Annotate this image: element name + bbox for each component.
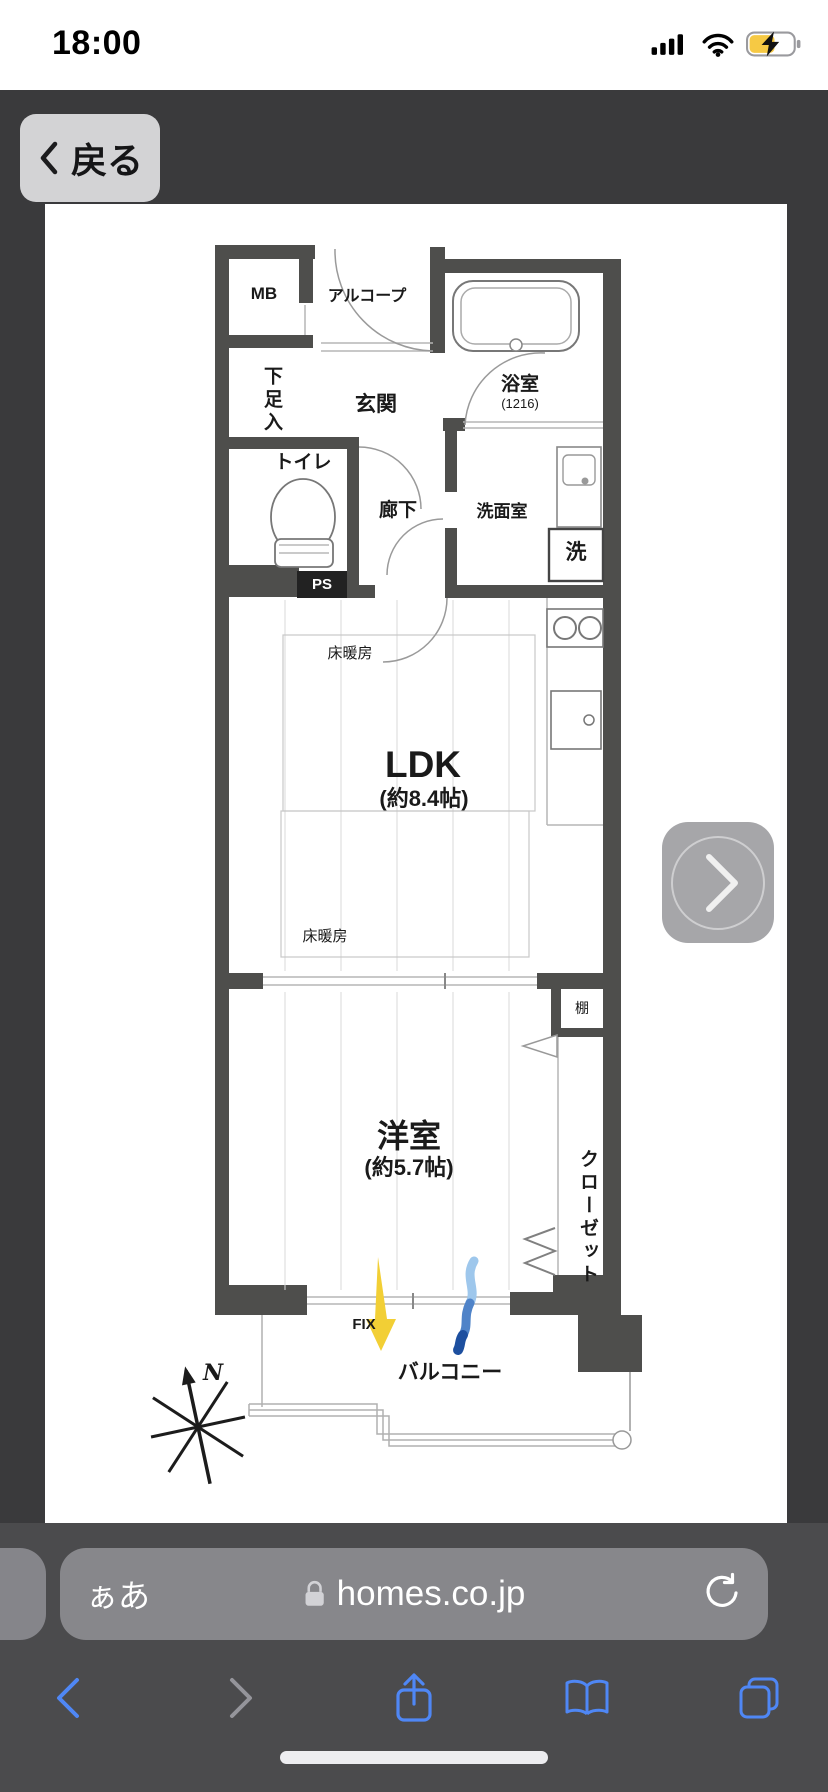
adjacent-tab-fragment[interactable]	[0, 1548, 46, 1640]
status-time: 18:00	[52, 24, 141, 63]
label-entrance: 玄関	[340, 393, 412, 416]
label-closet: クローゼット	[569, 1093, 597, 1343]
label-pipe-space: PS	[297, 571, 347, 598]
label-western-room: 洋室	[370, 1119, 448, 1154]
balcony-drain	[613, 1431, 631, 1449]
label-hallway: 廊下	[363, 501, 433, 522]
url-text: homes.co.jp	[337, 1574, 526, 1614]
back-button-label: 戻る	[71, 132, 143, 184]
cellular-signal-icon	[650, 31, 690, 57]
iphone-screen: 18:00	[0, 0, 828, 1792]
label-washroom: 洗面室	[463, 503, 541, 522]
label-shoe-cabinet: 下足入	[245, 355, 281, 445]
bathtub	[453, 281, 579, 351]
label-floor-heating-upper: 床暖房	[317, 646, 383, 663]
toilet-bowl	[271, 479, 335, 567]
label-toilet: トイレ	[267, 453, 339, 474]
book-open-icon	[561, 1676, 613, 1720]
washbasin	[557, 447, 601, 527]
label-fix-window: FIX	[343, 1317, 385, 1334]
door-swing-marker	[523, 1035, 557, 1057]
browser-forward-button[interactable]	[215, 1670, 267, 1726]
status-icons	[650, 30, 802, 58]
label-shelf: 棚	[567, 1001, 597, 1016]
browser-back-button[interactable]	[42, 1670, 94, 1726]
url-display[interactable]: homes.co.jp	[303, 1574, 526, 1614]
label-ldk: LDK	[375, 745, 471, 786]
reload-button[interactable]	[698, 1571, 742, 1618]
chevron-right-icon	[226, 1675, 256, 1721]
chevron-left-icon	[53, 1675, 83, 1721]
safari-toolbar	[0, 1663, 828, 1733]
label-bathroom-size: (1216)	[487, 397, 553, 411]
kitchen-stove	[547, 609, 603, 647]
battery-charging-icon	[746, 30, 802, 58]
chevron-right-icon	[668, 833, 768, 933]
label-washer: 洗	[549, 541, 603, 564]
label-alcove: アルコープ	[315, 288, 419, 306]
status-bar: 18:00	[0, 0, 828, 90]
reader-mode-button[interactable]: ぁあ	[86, 1571, 150, 1617]
tabs-button[interactable]	[734, 1670, 786, 1726]
chevron-left-icon	[37, 136, 61, 180]
next-image-button[interactable]	[662, 822, 774, 943]
closet-folding-door	[525, 1228, 555, 1275]
label-western-room-size: (約5.7帖)	[355, 1156, 463, 1180]
safari-bottom-bar: ぁあ homes.co.jp	[0, 1523, 828, 1792]
label-ldk-size: (約8.4帖)	[360, 787, 488, 811]
bookmarks-button[interactable]	[561, 1670, 613, 1726]
kitchen-sink	[551, 691, 601, 749]
reload-icon	[698, 1571, 742, 1615]
label-balcony: バルコニー	[383, 1361, 517, 1384]
stacked-squares-icon	[736, 1674, 784, 1722]
share-icon	[391, 1670, 437, 1726]
back-button[interactable]: 戻る	[20, 114, 160, 202]
airflow-arrow	[458, 1261, 474, 1350]
label-floor-heating-lower: 床暖房	[292, 929, 358, 946]
wifi-icon	[700, 31, 736, 57]
label-bathroom: 浴室	[485, 375, 555, 396]
label-mb: MB	[237, 285, 291, 304]
share-button[interactable]	[388, 1670, 440, 1726]
home-indicator[interactable]	[280, 1751, 548, 1764]
address-bar[interactable]: ぁあ homes.co.jp	[60, 1548, 768, 1640]
photo-viewer: 戻る	[0, 90, 828, 1523]
lock-icon	[303, 1579, 327, 1609]
label-compass-north: N	[195, 1361, 231, 1385]
